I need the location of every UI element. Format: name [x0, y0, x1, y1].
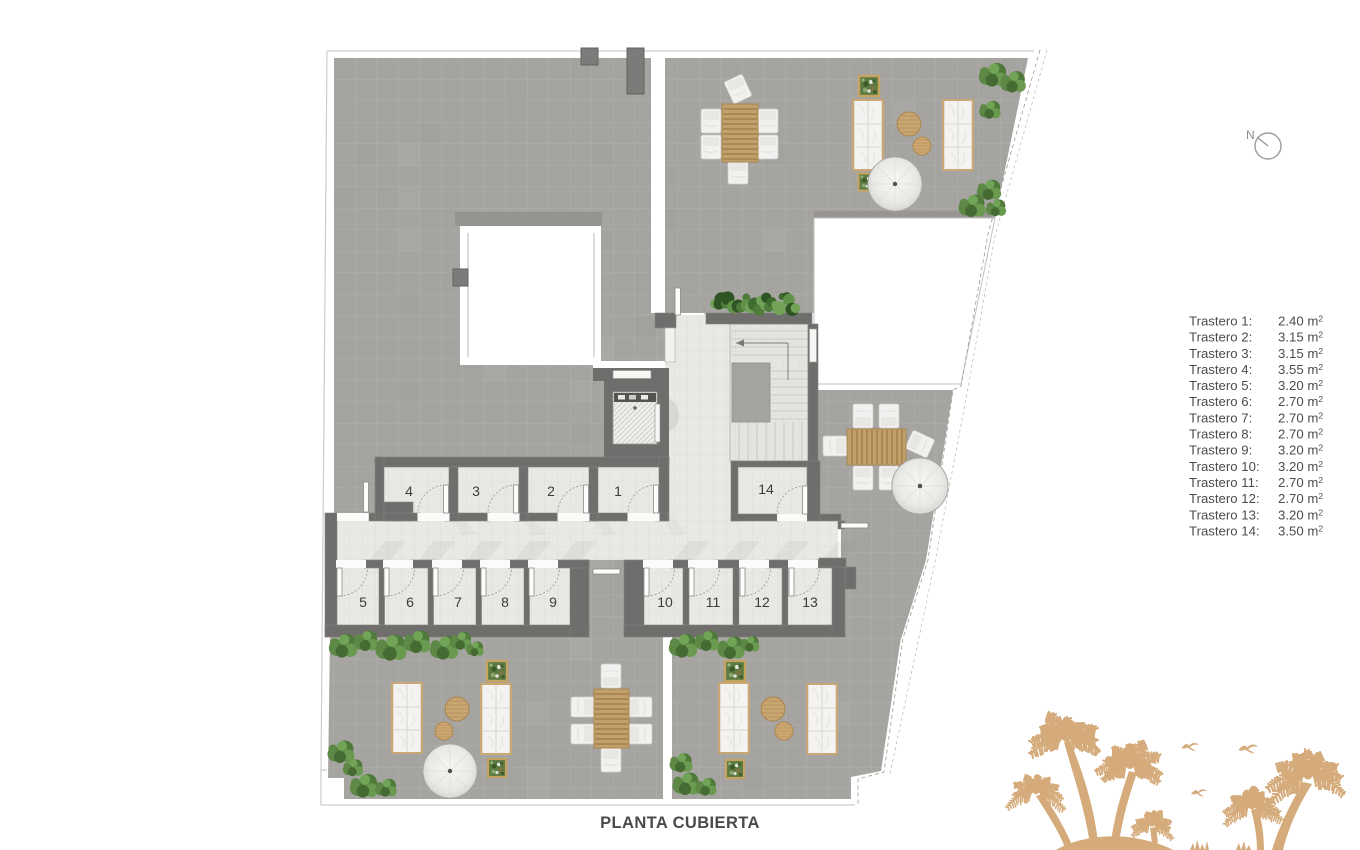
svg-text:5: 5 — [359, 594, 367, 610]
svg-text:13: 13 — [802, 594, 818, 610]
svg-text:Trastero 8:: Trastero 8: — [1189, 427, 1252, 442]
svg-text:3.55 m2: 3.55 m2 — [1278, 362, 1323, 377]
svg-text:Trastero 6:: Trastero 6: — [1189, 394, 1252, 409]
svg-text:3.20 m2: 3.20 m2 — [1278, 507, 1323, 522]
svg-text:4: 4 — [405, 483, 413, 499]
svg-text:Trastero 10:: Trastero 10: — [1189, 459, 1260, 474]
svg-text:3.20 m2: 3.20 m2 — [1278, 443, 1323, 458]
svg-text:12: 12 — [754, 594, 770, 610]
svg-text:14: 14 — [758, 481, 774, 497]
svg-text:8: 8 — [501, 594, 509, 610]
svg-text:2.70 m2: 2.70 m2 — [1278, 491, 1323, 506]
svg-text:1: 1 — [614, 483, 622, 499]
svg-text:2.40 m2: 2.40 m2 — [1278, 314, 1323, 329]
svg-text:3.50 m2: 3.50 m2 — [1278, 524, 1323, 539]
svg-text:3: 3 — [472, 483, 480, 499]
svg-text:Trastero 11:: Trastero 11: — [1189, 475, 1259, 490]
svg-text:Trastero 12:: Trastero 12: — [1189, 491, 1260, 506]
svg-text:6: 6 — [406, 594, 414, 610]
svg-text:9: 9 — [549, 594, 557, 610]
svg-text:3.20 m2: 3.20 m2 — [1278, 459, 1323, 474]
svg-text:Trastero 4:: Trastero 4: — [1189, 362, 1252, 377]
svg-text:3.20 m2: 3.20 m2 — [1278, 378, 1323, 393]
svg-text:3.15 m2: 3.15 m2 — [1278, 346, 1323, 361]
svg-text:Trastero 9:: Trastero 9: — [1189, 443, 1252, 458]
svg-text:Trastero 2:: Trastero 2: — [1189, 330, 1252, 345]
svg-text:2.70 m2: 2.70 m2 — [1278, 475, 1323, 490]
svg-text:2.70 m2: 2.70 m2 — [1278, 427, 1323, 442]
svg-text:Trastero 5:: Trastero 5: — [1189, 378, 1252, 393]
svg-text:Trastero 13:: Trastero 13: — [1189, 507, 1260, 522]
svg-text:11: 11 — [706, 594, 721, 610]
svg-text:PLANTA CUBIERTA: PLANTA CUBIERTA — [600, 814, 760, 832]
svg-text:10: 10 — [657, 594, 673, 610]
svg-text:Trastero 1:: Trastero 1: — [1189, 314, 1252, 329]
svg-text:2: 2 — [547, 483, 555, 499]
svg-text:Trastero 3:: Trastero 3: — [1189, 346, 1252, 361]
svg-text:2.70 m2: 2.70 m2 — [1278, 410, 1323, 425]
svg-text:N: N — [1246, 128, 1255, 142]
svg-text:3.15 m2: 3.15 m2 — [1278, 330, 1323, 345]
svg-text:7: 7 — [454, 594, 462, 610]
svg-text:2.70 m2: 2.70 m2 — [1278, 394, 1323, 409]
svg-text:Trastero 7:: Trastero 7: — [1189, 410, 1252, 425]
svg-text:Trastero 14:: Trastero 14: — [1189, 524, 1260, 539]
